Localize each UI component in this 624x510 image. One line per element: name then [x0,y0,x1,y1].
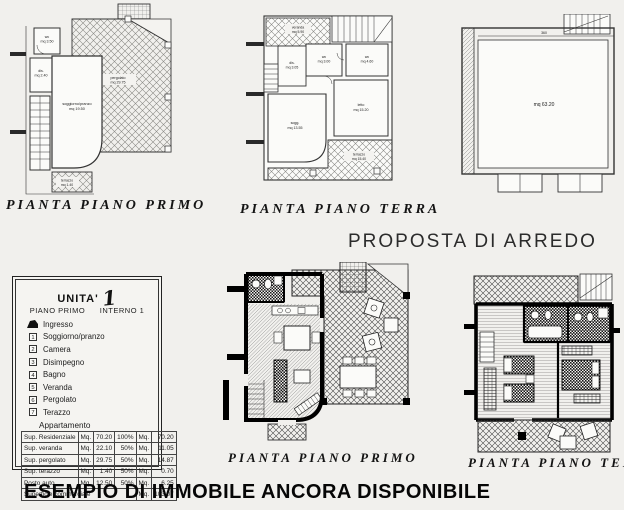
plan-ground-floor-drawing: veranda mq 5.90 wc mq 3.00 wc mq 4.60 di… [240,0,405,202]
item-label: Camera [43,345,71,354]
wc-mq: mq 3.50 [41,40,54,44]
item-number: 5 [29,383,37,391]
scanned-floorplan-page: pergolato mq 29.75 wc mq 3.50 dis. mq 2.… [0,0,624,510]
stairs-top [564,14,610,34]
row-label: Sup. veranda [22,443,79,455]
toilet [587,313,593,322]
terrace-table [384,318,398,332]
single-bed [504,356,534,374]
legend-item: 5 Veranda [21,381,153,394]
chimney [118,4,150,19]
dim-top: 360 [541,31,547,35]
wc1-label: wc [322,55,327,59]
terrazzo-mq: mq 15.40 [352,157,366,161]
sogg-mq: mq 13.55 [288,126,303,130]
table-row: Sup. veranda Mq. 22.10 50% Mq. 11.05 [22,443,177,455]
unit-legend-box: UNITA'1 PIANO PRIMO INTERNO 1 Ingresso 1… [12,276,162,470]
kitchen-counter [272,306,318,315]
legend-item: 4 Bagno [21,368,153,381]
floor-line: PIANO PRIMO [30,306,86,315]
legend-item: 2 Camera [21,343,153,356]
stairs [480,332,494,362]
row-label: Sup. Residenziale [22,431,79,443]
sofa [274,360,287,402]
item-label: Disimpegno [43,358,84,367]
terrazzo-area: terrazzo mq 1.40 [52,172,92,192]
dis-label: dis. [38,69,44,73]
bathtub [528,326,562,338]
terrace-post [518,432,526,440]
area-label: mq 63.20 [534,102,555,108]
row-label: Sup. terazzo [22,466,79,478]
item-label: Bagno [43,370,66,379]
caption-furnished-first: PIANTA PIANO PRIMO [228,450,408,466]
item-number: 1 [29,333,37,341]
letto-mq: mq 15.20 [354,108,369,112]
plan-first-floor-drawing: pergolato mq 29.75 wc mq 3.50 dis. mq 2.… [6,2,181,200]
window-wells [498,174,602,192]
wc1-mq: mq 3.00 [318,60,331,64]
caption-furnished-ground: PIANTA PIANO TERRA [468,455,618,471]
wall-stubs [223,286,246,420]
soggiorno-mq: mq 19.50 [69,107,85,111]
entrance-icon [27,320,39,328]
plan-furnished-first-drawing [222,262,412,452]
veranda-area: veranda mq 5.90 [266,18,330,46]
pergolato-label: pergolato [111,76,126,80]
legend-title: UNITA'1 [21,283,153,305]
dresser [574,394,600,403]
legend-subtitle: PIANO PRIMO INTERNO 1 [21,306,153,315]
toilet [545,311,551,320]
terrazzo-mq: mq 1.40 [61,183,73,187]
wall-stubs [246,42,264,144]
terrazzo-label: terrazzo [353,153,365,157]
item-number: 6 [29,396,37,404]
dis-mq: mq 3.05 [286,66,299,70]
item-label: Veranda [43,383,72,392]
outdoor-dining-set [340,357,376,397]
item-label: Terazzo [43,408,70,417]
wall-stubs [10,52,26,134]
wc-label: wc [45,35,50,39]
stairs-top [332,16,392,42]
balcony [268,420,306,440]
item-number: 7 [29,408,37,416]
caption-ground-floor: PIANTA PIANO TERRA [240,202,405,218]
pergolato-mq: mq 29.75 [111,81,126,85]
legend-item: 3 Disimpegno [21,356,153,369]
unit-number: 1 [101,285,118,310]
veranda-mq: mq 5.90 [292,30,304,34]
sogg-label: sogg. [291,121,300,125]
item-label: Soggiorno/pranzo [43,332,105,341]
double-bed [562,360,600,390]
wc2-mq: mq 4.60 [361,60,374,64]
veranda-area [474,274,612,304]
wardrobe [484,368,496,410]
row-label: Sup. pergolato [22,454,79,466]
wardrobe [562,346,592,355]
dis-mq: mq 2.40 [35,74,48,78]
letto-label: letto [358,103,365,107]
veranda-label: veranda [292,26,304,30]
apartment-heading: Appartamento [39,421,153,430]
legend-item: 1 Soggiorno/pranzo [21,331,153,344]
ingresso-label: Ingresso [43,320,73,329]
soggiorno-label: soggiorno/pranzo [62,102,91,106]
terrace-table [560,436,576,449]
proposta-di-arredo-title: PROPOSTA DI ARREDO [348,231,624,253]
terrace-area [478,420,610,452]
sink [252,280,260,288]
single-bed [504,384,534,402]
caption-first-floor: PIANTA PIANO PRIMO [6,198,181,214]
table-row: Sup. pergolato Mq. 29.75 50% Mq. 14.87 [22,454,177,466]
legend-item: 7 Terazzo [21,406,153,419]
sink [531,311,539,319]
dis-label: dis. [289,61,294,65]
bidet [274,276,282,285]
item-number: 2 [29,345,37,353]
terrace-chair [362,332,381,351]
apartment-interior [478,306,610,418]
table-row: Sup. terazzo Mq. 1.40 50% Mq. 0.70 [22,466,177,478]
legend-item: 6 Pergolato [21,394,153,407]
sink [574,313,582,321]
coffee-table [294,370,310,383]
legend-title-text: UNITA' [57,293,98,305]
table-row: Sup. Residenziale Mq. 70.20 100% Mq. 70.… [22,431,177,443]
shower [598,308,608,318]
legend-entry-ingresso: Ingresso [21,318,153,331]
terrazzo-label: terrazzo [61,179,73,183]
item-number: 4 [29,371,37,379]
item-number: 3 [29,358,37,366]
footer-headline: ESEMPIO DI IMMOBILE ANCORA DISPONIBILE [24,481,490,504]
plan-garage-drawing: 360 mq 63.20 [448,14,622,214]
room-walls: 360 mq 63.20 [462,28,614,174]
plan-furnished-ground-drawing [462,272,622,455]
wc2-label: wc [365,55,370,59]
nightstand [526,375,534,383]
toilet [265,279,272,289]
item-label: Pergolato [43,395,76,404]
